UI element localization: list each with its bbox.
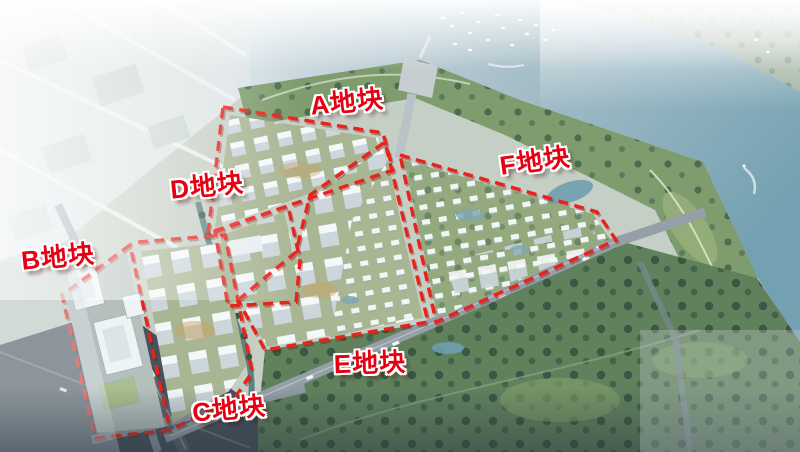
pond (456, 209, 484, 221)
plot-a-label: A地块 (309, 85, 385, 119)
pond (510, 245, 530, 255)
plot-e-label: E地块 (333, 349, 406, 378)
pond (341, 296, 359, 304)
plot-d-label: D地块 (169, 169, 245, 203)
plot-b-label: B地块 (20, 240, 96, 274)
scene-canvas (0, 0, 800, 452)
aerial-masterplan-rendering: A地块 B地块 C地块 D地块 E地块 F地块 (0, 0, 800, 452)
plot-c-label: C地块 (191, 392, 267, 426)
park-pond (432, 342, 464, 354)
